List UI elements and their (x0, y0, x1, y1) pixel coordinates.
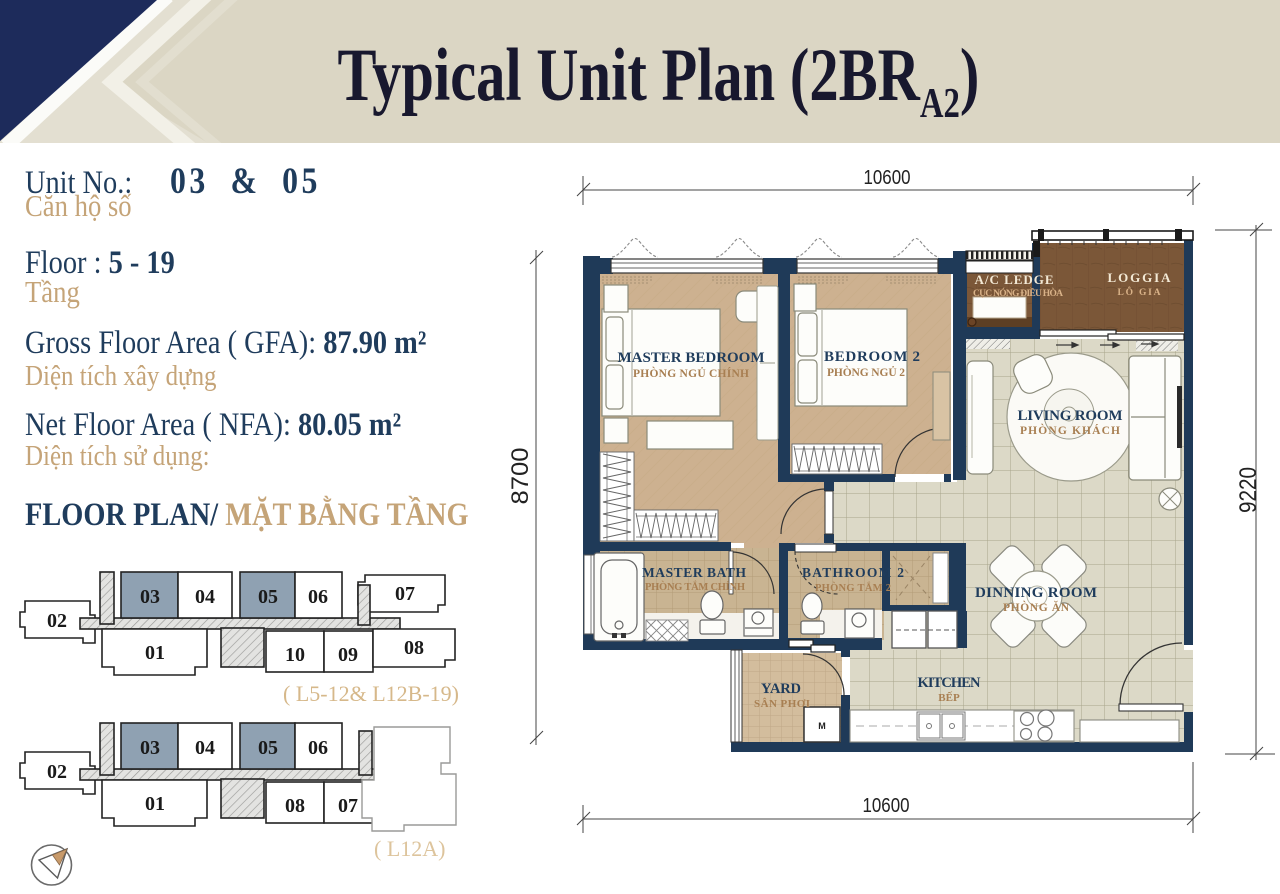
svg-text:MASTER BATH: MASTER BATH (642, 565, 746, 580)
svg-text:A/C LEDGE: A/C LEDGE (975, 272, 1054, 287)
svg-text:10600: 10600 (864, 167, 911, 189)
svg-text:PHÒNG TẮM CHÍNH: PHÒNG TẮM CHÍNH (645, 580, 745, 593)
svg-text:03: 03 (140, 586, 160, 608)
svg-text:10: 10 (285, 644, 305, 666)
svg-text:PHÒNG NGỦ CHÍNH: PHÒNG NGỦ CHÍNH (633, 366, 749, 380)
svg-text:( L5-12& L12B-19): ( L5-12& L12B-19) (283, 681, 459, 706)
svg-text:04: 04 (195, 586, 215, 608)
svg-text:PHÒNG KHÁCH: PHÒNG KHÁCH (1020, 423, 1120, 437)
svg-text:BẾP: BẾP (938, 691, 960, 704)
svg-text:KITCHEN: KITCHEN (918, 675, 982, 691)
svg-text:03: 03 (140, 737, 160, 759)
svg-text:YARD: YARD (761, 681, 801, 697)
svg-text:02: 02 (47, 610, 67, 632)
svg-text:08: 08 (285, 795, 305, 817)
svg-text:05: 05 (258, 586, 278, 608)
svg-text:07: 07 (395, 583, 415, 605)
svg-text:( L12A): ( L12A) (374, 836, 445, 861)
svg-text:LIVING ROOM: LIVING ROOM (1018, 408, 1123, 424)
svg-text:SÂN PHƠI: SÂN PHƠI (754, 698, 810, 710)
svg-text:06: 06 (308, 737, 328, 759)
svg-text:8700: 8700 (507, 448, 534, 505)
svg-text:BATHROOM 2: BATHROOM 2 (802, 565, 904, 580)
svg-text:10600: 10600 (863, 795, 910, 817)
svg-text:MASTER BEDROOM: MASTER BEDROOM (618, 350, 765, 366)
svg-text:DINNING ROOM: DINNING ROOM (975, 585, 1097, 601)
svg-text:BEDROOM 2: BEDROOM 2 (824, 349, 920, 365)
svg-text:9220: 9220 (1235, 467, 1262, 513)
svg-text:M: M (818, 721, 826, 731)
svg-text:PHÒNG TẮM 2: PHÒNG TẮM 2 (815, 581, 891, 594)
svg-text:07: 07 (338, 795, 358, 817)
svg-text:06: 06 (308, 586, 328, 608)
svg-text:PHÒNG ĂN: PHÒNG ĂN (1003, 600, 1070, 614)
svg-text:04: 04 (195, 737, 215, 759)
svg-text:08: 08 (404, 637, 424, 659)
svg-text:09: 09 (338, 644, 358, 666)
svg-text:01: 01 (145, 793, 165, 815)
svg-text:01: 01 (145, 642, 165, 664)
svg-text:02: 02 (47, 761, 67, 783)
svg-text:PHÒNG NGỦ 2: PHÒNG NGỦ 2 (827, 365, 905, 379)
svg-text:05: 05 (258, 737, 278, 759)
